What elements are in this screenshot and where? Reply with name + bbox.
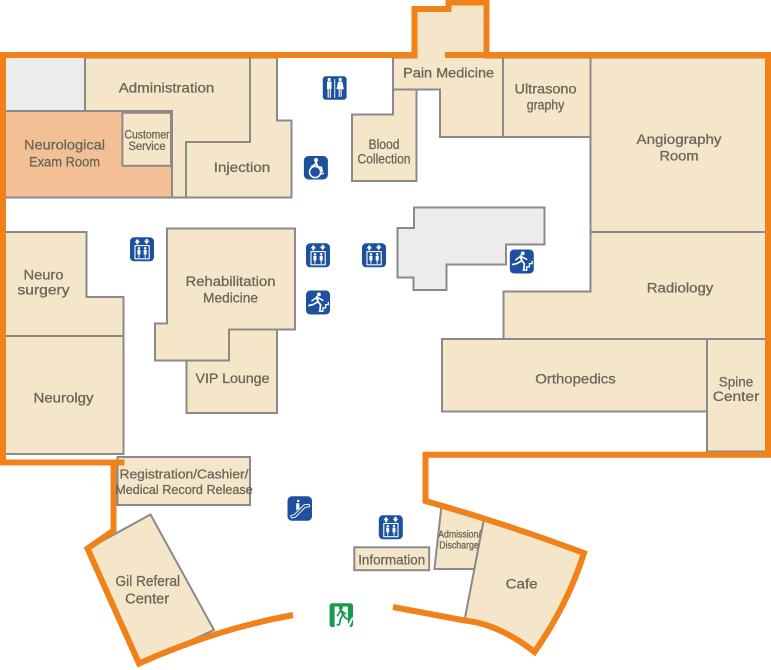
svg-text:Cafe: Cafe xyxy=(506,576,538,591)
svg-text:Service: Service xyxy=(129,141,166,153)
svg-text:Medical Record Release: Medical Record Release xyxy=(115,482,253,497)
svg-text:Discharge: Discharge xyxy=(439,540,479,551)
svg-text:Center: Center xyxy=(713,389,760,404)
svg-text:Collection: Collection xyxy=(358,152,411,167)
svg-text:Registration/Cashier/: Registration/Cashier/ xyxy=(120,467,249,482)
svg-text:Medicine: Medicine xyxy=(203,291,258,306)
svg-text:Admission/: Admission/ xyxy=(438,529,481,540)
svg-text:Radiology: Radiology xyxy=(647,280,714,295)
svg-text:Blood: Blood xyxy=(369,137,400,152)
svg-text:VIP Lounge: VIP Lounge xyxy=(196,371,270,386)
svg-text:Neurological: Neurological xyxy=(24,138,105,153)
svg-text:Injection: Injection xyxy=(214,160,271,175)
svg-text:Neurolgy: Neurolgy xyxy=(34,390,94,405)
svg-text:Administration: Administration xyxy=(119,81,215,96)
svg-text:graphy: graphy xyxy=(527,98,565,113)
svg-text:Exam Room: Exam Room xyxy=(29,154,100,169)
svg-text:Angiography: Angiography xyxy=(637,132,722,147)
svg-text:Ultrasono: Ultrasono xyxy=(515,82,577,97)
svg-text:Customer: Customer xyxy=(125,129,170,141)
svg-text:Room: Room xyxy=(660,149,699,164)
svg-text:Neuro: Neuro xyxy=(24,268,64,283)
svg-text:Orthopedics: Orthopedics xyxy=(535,372,616,387)
svg-text:Gil Referal: Gil Referal xyxy=(116,574,181,590)
svg-text:Rehabilitation: Rehabilitation xyxy=(186,274,276,289)
svg-text:Information: Information xyxy=(358,552,425,568)
svg-text:Pain Medicine: Pain Medicine xyxy=(403,66,494,81)
svg-text:Spine: Spine xyxy=(719,375,754,390)
svg-text:surgery: surgery xyxy=(18,283,70,298)
svg-text:Center: Center xyxy=(125,592,169,608)
